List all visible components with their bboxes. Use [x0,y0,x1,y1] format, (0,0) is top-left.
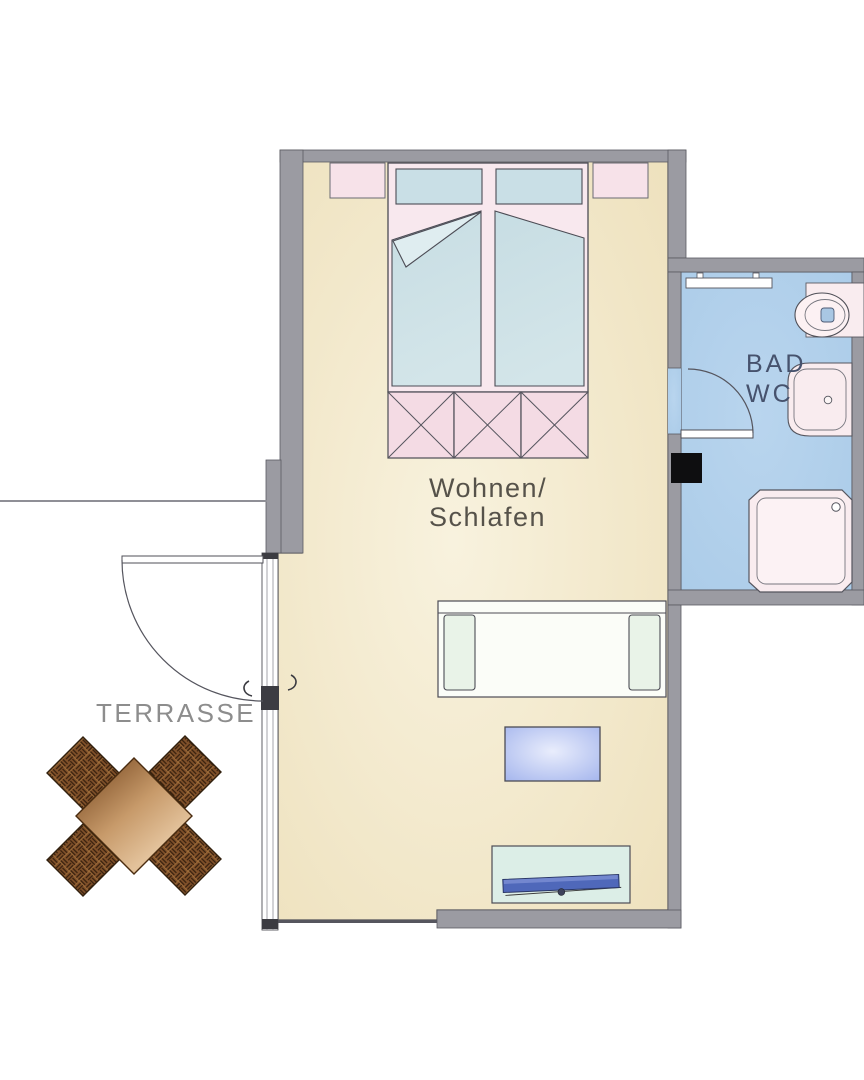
living-room-label-line2: Schlafen [429,502,546,532]
shelf-bracket [697,273,703,278]
bathroom-label-line1: BAD [746,350,806,378]
shower-drain [832,503,840,511]
tv-stand-foot [558,888,565,895]
glass-wall-mullion-bottom [262,919,278,929]
bathroom-shelf [686,278,772,288]
pillow-left [396,169,482,204]
bathroom-label-line2: WC [746,380,794,408]
wall-left-lower [266,460,281,553]
wall-bath-top [668,258,864,272]
shower-tray-inner [757,498,845,584]
wall-bath-right-lower [852,337,864,605]
nightstand-right [593,163,648,198]
tv-sideboard [492,846,630,903]
floor-plan-drawing: Wohnen/ Schlafen BAD WC TERRASSE [0,0,864,1080]
terrace-door-leaf [122,556,263,563]
bathroom-door-threshold [668,368,681,434]
wall-living-right-lower [668,605,681,928]
wall-left [280,150,303,553]
nightstand-left [330,163,385,198]
wall-bath-right-upper [852,272,864,283]
glass-wall-mullion-top [262,553,278,559]
living-room-label-line1: Wohnen/ [429,473,547,503]
bed-foot-bench [388,392,588,458]
terrace-door-swing-arc [122,560,263,701]
terrace-label: TERRASSE [96,698,256,728]
sofa [438,601,666,697]
bathroom-door-leaf [681,430,753,438]
wall-top [280,150,686,162]
door-handle-outside [244,681,252,696]
coffee-table [505,727,600,781]
door-lock-block [261,686,279,710]
mattress-right [495,211,584,386]
sofa-armrest-left [444,615,475,690]
washbasin-drain [824,396,832,404]
window-sill-bottom [278,920,437,923]
wall-living-bottom [437,910,681,928]
shelf-bracket [753,273,759,278]
duct-shaft [671,453,702,483]
wall-bath-left-upper [668,272,681,368]
sofa-armrest-right [629,615,660,690]
glass-wall-frame [262,553,278,930]
floor-plan-page: Wohnen/ Schlafen BAD WC TERRASSE [0,0,864,1080]
wall-right-upper [668,150,686,258]
toilet-flush-button [821,308,834,322]
pillow-right [496,169,582,204]
shower [749,490,852,592]
